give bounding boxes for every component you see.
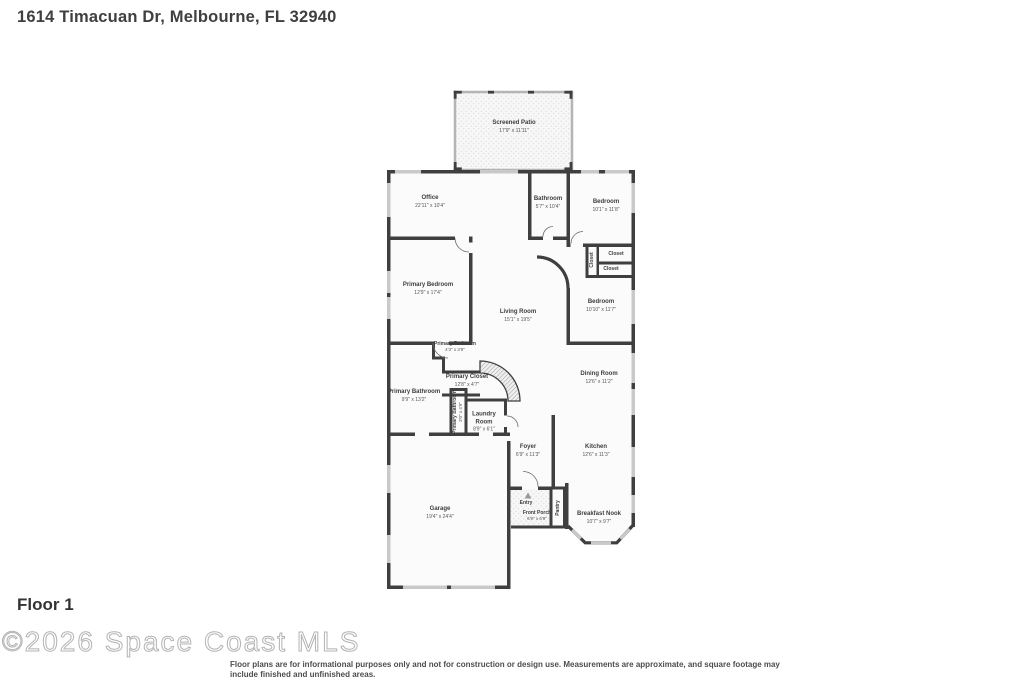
screened-patio-area [454, 91, 573, 170]
floor-label: Floor 1 [17, 595, 74, 615]
disclaimer-text: Floor plans are for informational purpos… [230, 660, 800, 679]
floor-plan: Screened Patio 17'9" x 11'11" Office 22'… [385, 85, 640, 595]
front-porch-area [511, 489, 550, 527]
page-title: 1614 Timacuan Dr, Melbourne, FL 32940 [17, 8, 337, 27]
mls-watermark: ©2026 Space Coast MLS [2, 626, 360, 658]
floor-plan-drawing [385, 85, 640, 595]
